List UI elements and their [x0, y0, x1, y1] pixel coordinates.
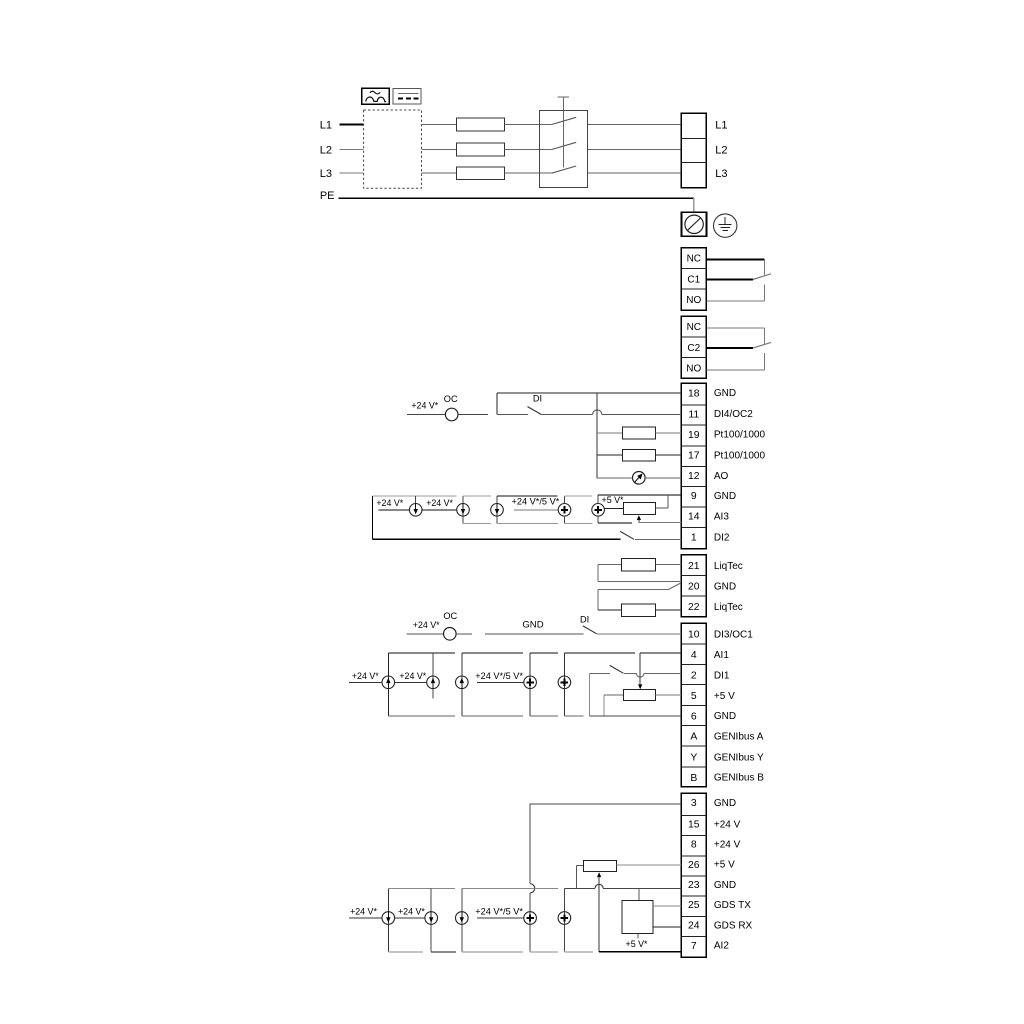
svg-text:GND: GND — [714, 491, 736, 502]
svg-text:NC: NC — [687, 254, 701, 265]
svg-text:+24 V: +24 V — [714, 840, 741, 851]
svg-text:+24 V*: +24 V* — [376, 497, 403, 508]
svg-text:GND: GND — [714, 798, 736, 809]
svg-text:L1: L1 — [715, 120, 727, 132]
svg-text:OC: OC — [443, 610, 457, 621]
svg-text:NO: NO — [686, 363, 701, 374]
svg-text:GDS RX: GDS RX — [714, 920, 753, 931]
svg-text:21: 21 — [688, 561, 700, 572]
svg-text:+24 V*: +24 V* — [426, 497, 453, 508]
svg-text:+5 V*: +5 V* — [602, 494, 624, 505]
svg-text:OC: OC — [444, 393, 458, 404]
svg-text:25: 25 — [688, 900, 700, 911]
svg-text:+24 V*: +24 V* — [352, 670, 379, 681]
svg-text:18: 18 — [688, 388, 700, 399]
svg-text:GND: GND — [714, 711, 736, 722]
svg-text:19: 19 — [688, 430, 700, 441]
svg-text:L3: L3 — [715, 168, 727, 180]
svg-text:+5 V: +5 V — [714, 860, 735, 871]
svg-text:LiqTec: LiqTec — [714, 602, 743, 613]
svg-text:GENIbus Y: GENIbus Y — [714, 752, 764, 763]
svg-text:20: 20 — [688, 582, 700, 593]
svg-text:15: 15 — [688, 819, 700, 830]
svg-text:+24 V: +24 V — [714, 819, 741, 830]
svg-text:DI1: DI1 — [714, 670, 730, 681]
svg-text:LiqTec: LiqTec — [714, 561, 743, 572]
svg-text:+24 V*/5 V*: +24 V*/5 V* — [475, 906, 523, 917]
svg-text:+5 V: +5 V — [714, 691, 735, 702]
svg-text:24: 24 — [688, 921, 700, 932]
svg-text:+24 V*/5 V*: +24 V*/5 V* — [475, 670, 523, 681]
svg-text:GENIbus B: GENIbus B — [714, 773, 764, 784]
svg-text:L3: L3 — [320, 168, 332, 180]
svg-text:GND: GND — [522, 619, 543, 630]
svg-text:NO: NO — [686, 295, 701, 306]
svg-text:PE: PE — [320, 190, 335, 202]
svg-text:A: A — [690, 732, 697, 743]
svg-text:7: 7 — [691, 941, 697, 952]
svg-text:Pt100/1000: Pt100/1000 — [714, 450, 766, 461]
svg-text:Y: Y — [690, 752, 697, 763]
svg-text:+24 V*: +24 V* — [350, 906, 377, 917]
svg-text:8: 8 — [691, 840, 697, 851]
svg-text:GND: GND — [714, 880, 736, 891]
svg-text:C1: C1 — [687, 274, 700, 285]
svg-text:DI4/OC2: DI4/OC2 — [714, 409, 753, 420]
svg-text:17: 17 — [688, 451, 700, 462]
svg-text:23: 23 — [688, 880, 700, 891]
svg-text:L2: L2 — [715, 145, 727, 157]
svg-text:+24 V*: +24 V* — [399, 670, 426, 681]
svg-text:GDS TX: GDS TX — [714, 900, 751, 911]
svg-text:+5 V*: +5 V* — [626, 938, 648, 949]
svg-text:+24 V*: +24 V* — [398, 906, 425, 917]
svg-text:C2: C2 — [687, 343, 700, 354]
svg-text:Pt100/1000: Pt100/1000 — [714, 430, 766, 441]
svg-text:GND: GND — [714, 581, 736, 592]
svg-text:5: 5 — [691, 691, 697, 702]
svg-text:11: 11 — [688, 409, 699, 420]
svg-text:1: 1 — [691, 532, 697, 543]
svg-text:22: 22 — [688, 602, 700, 613]
svg-text:DI3/OC1: DI3/OC1 — [714, 629, 753, 640]
svg-text:AI3: AI3 — [714, 512, 729, 523]
svg-text:3: 3 — [691, 798, 697, 809]
svg-text:2: 2 — [691, 671, 697, 682]
svg-text:26: 26 — [688, 860, 700, 871]
svg-text:B: B — [690, 773, 697, 784]
svg-text:+24 V*: +24 V* — [413, 619, 440, 630]
svg-text:AO: AO — [714, 471, 729, 482]
svg-text:L2: L2 — [320, 145, 332, 157]
svg-text:AI1: AI1 — [714, 650, 729, 661]
svg-text:4: 4 — [691, 650, 697, 661]
svg-text:L1: L1 — [320, 120, 332, 132]
svg-text:14: 14 — [688, 512, 700, 523]
svg-text:NC: NC — [687, 322, 701, 333]
svg-text:10: 10 — [688, 629, 700, 640]
svg-text:GND: GND — [714, 388, 736, 399]
svg-text:12: 12 — [688, 471, 700, 482]
svg-text:AI2: AI2 — [714, 941, 729, 952]
svg-text:9: 9 — [691, 491, 697, 502]
svg-text:6: 6 — [691, 711, 697, 722]
svg-text:DI: DI — [533, 392, 542, 403]
svg-text:+24 V*/5 V*: +24 V*/5 V* — [512, 495, 560, 506]
svg-text:+24 V*: +24 V* — [411, 400, 438, 411]
svg-text:DI: DI — [580, 613, 589, 624]
svg-text:DI2: DI2 — [714, 532, 730, 543]
svg-text:GENIbus A: GENIbus A — [714, 732, 764, 743]
